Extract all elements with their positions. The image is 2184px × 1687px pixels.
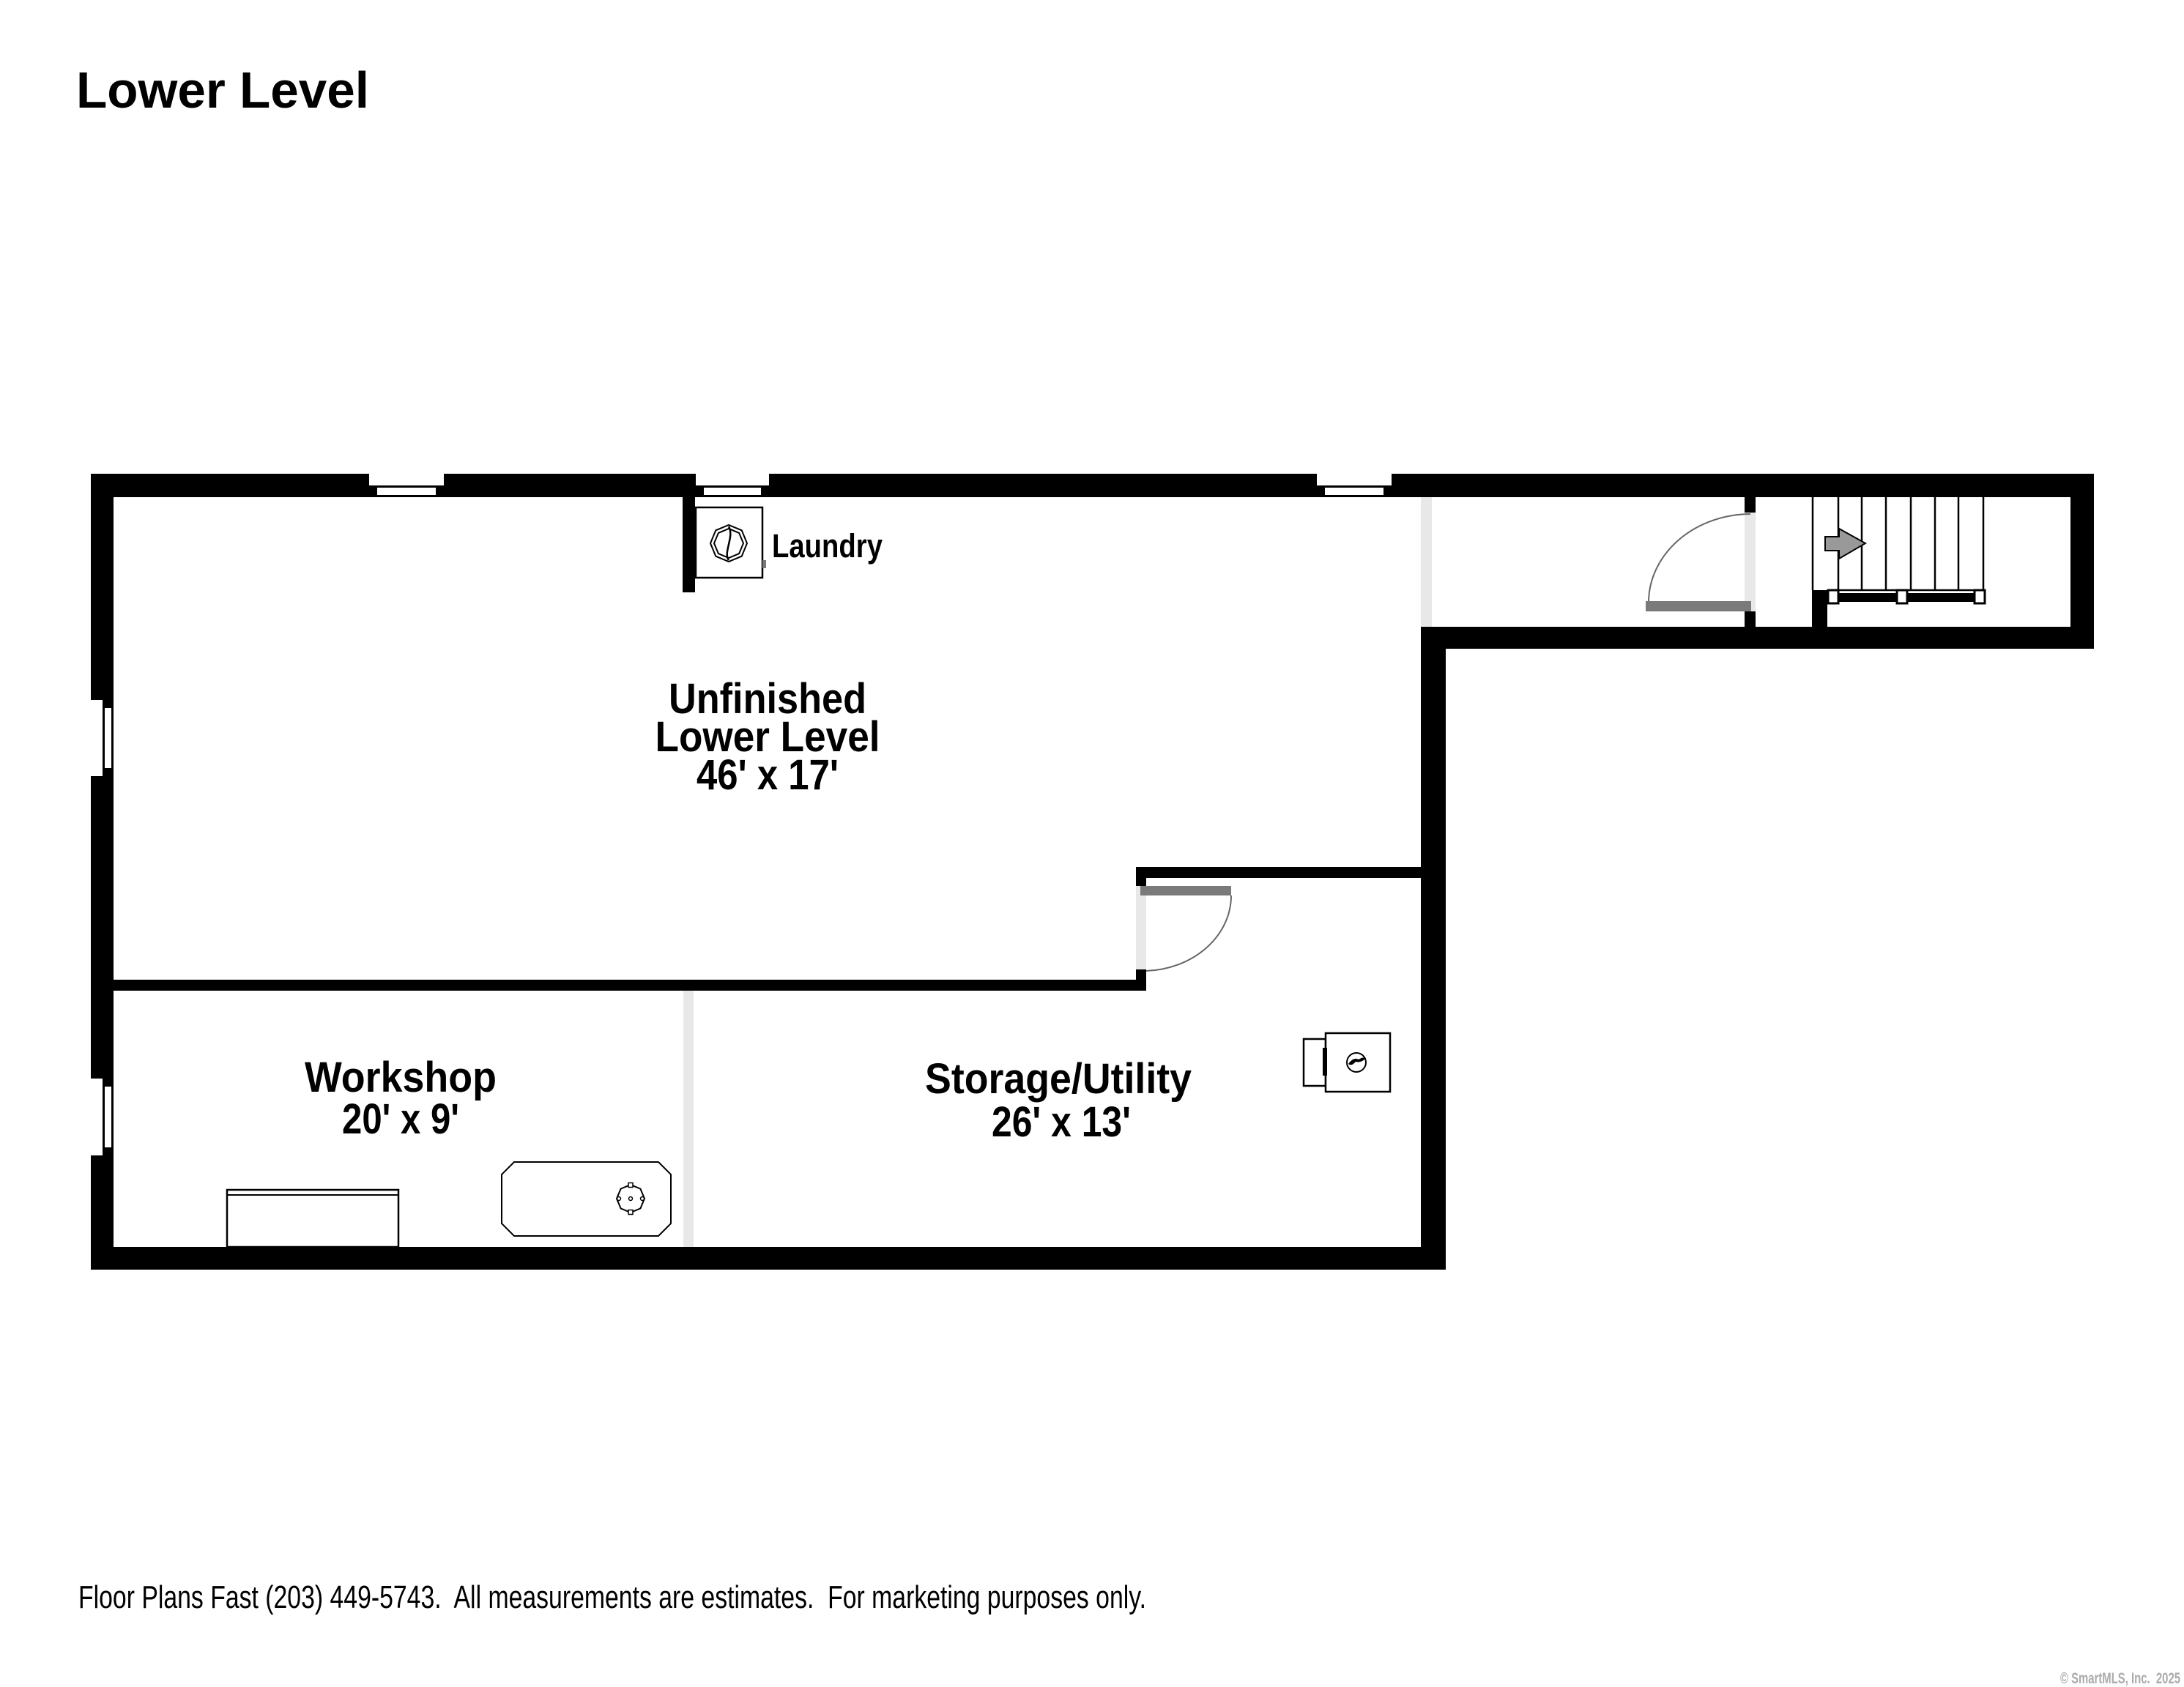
svg-text:Laundry: Laundry: [772, 527, 883, 565]
svg-text:Storage/Utility: Storage/Utility: [925, 1055, 1192, 1103]
svg-text:Lower Level: Lower Level: [76, 62, 369, 119]
svg-text:20' x 9': 20' x 9': [342, 1095, 459, 1143]
svg-text:Workshop: Workshop: [305, 1054, 497, 1101]
svg-text:Floor Plans Fast (203) 449-574: Floor Plans Fast (203) 449-5743. All mea…: [78, 1579, 1146, 1615]
svg-text:46' x 17': 46' x 17': [697, 751, 839, 799]
svg-text:26' x 13': 26' x 13': [992, 1098, 1131, 1146]
svg-text:© SmartMLS, Inc. 2025: © SmartMLS, Inc. 2025: [2060, 1670, 2180, 1687]
